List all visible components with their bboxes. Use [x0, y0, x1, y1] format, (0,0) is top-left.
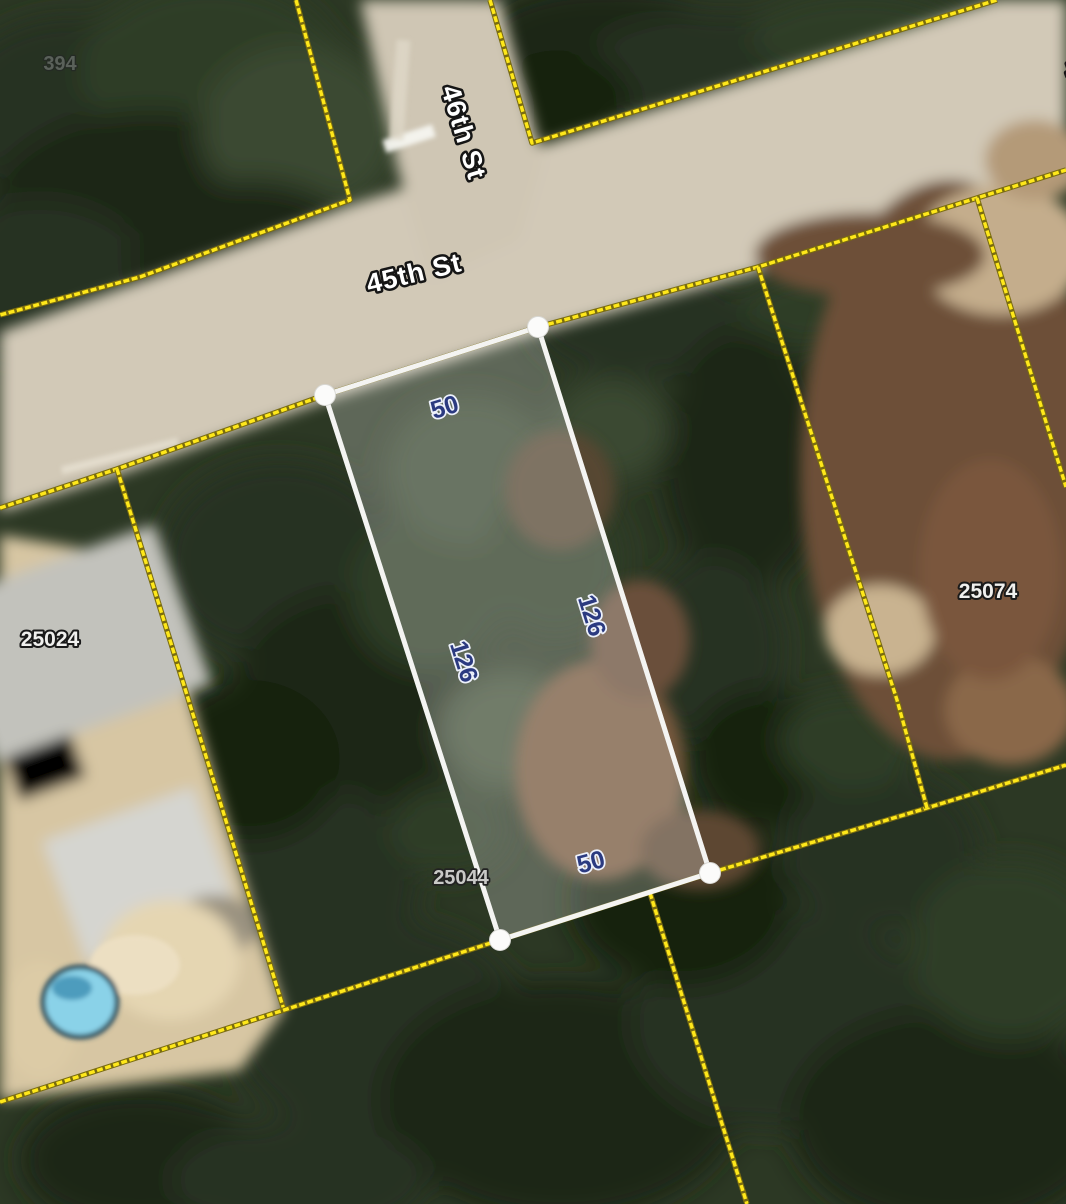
parcel-vertex-handle[interactable]: [700, 863, 721, 884]
map-viewport[interactable]: 46th St 45th St 4 394 25024 25074 25044 …: [0, 0, 1066, 1204]
parcel-vertex-handle[interactable]: [528, 317, 549, 338]
parcel-id-25024: 25024: [21, 628, 80, 651]
parcel-id-25044: 25044: [433, 867, 489, 889]
map-canvas[interactable]: 46th St 45th St 4 394 25024 25074 25044 …: [0, 0, 1066, 1204]
parcel-id-25074: 25074: [959, 580, 1018, 603]
parcel-vertex-handle[interactable]: [490, 930, 511, 951]
parcel-id-394: 394: [43, 53, 77, 75]
parcel-vertex-handle[interactable]: [315, 385, 336, 406]
